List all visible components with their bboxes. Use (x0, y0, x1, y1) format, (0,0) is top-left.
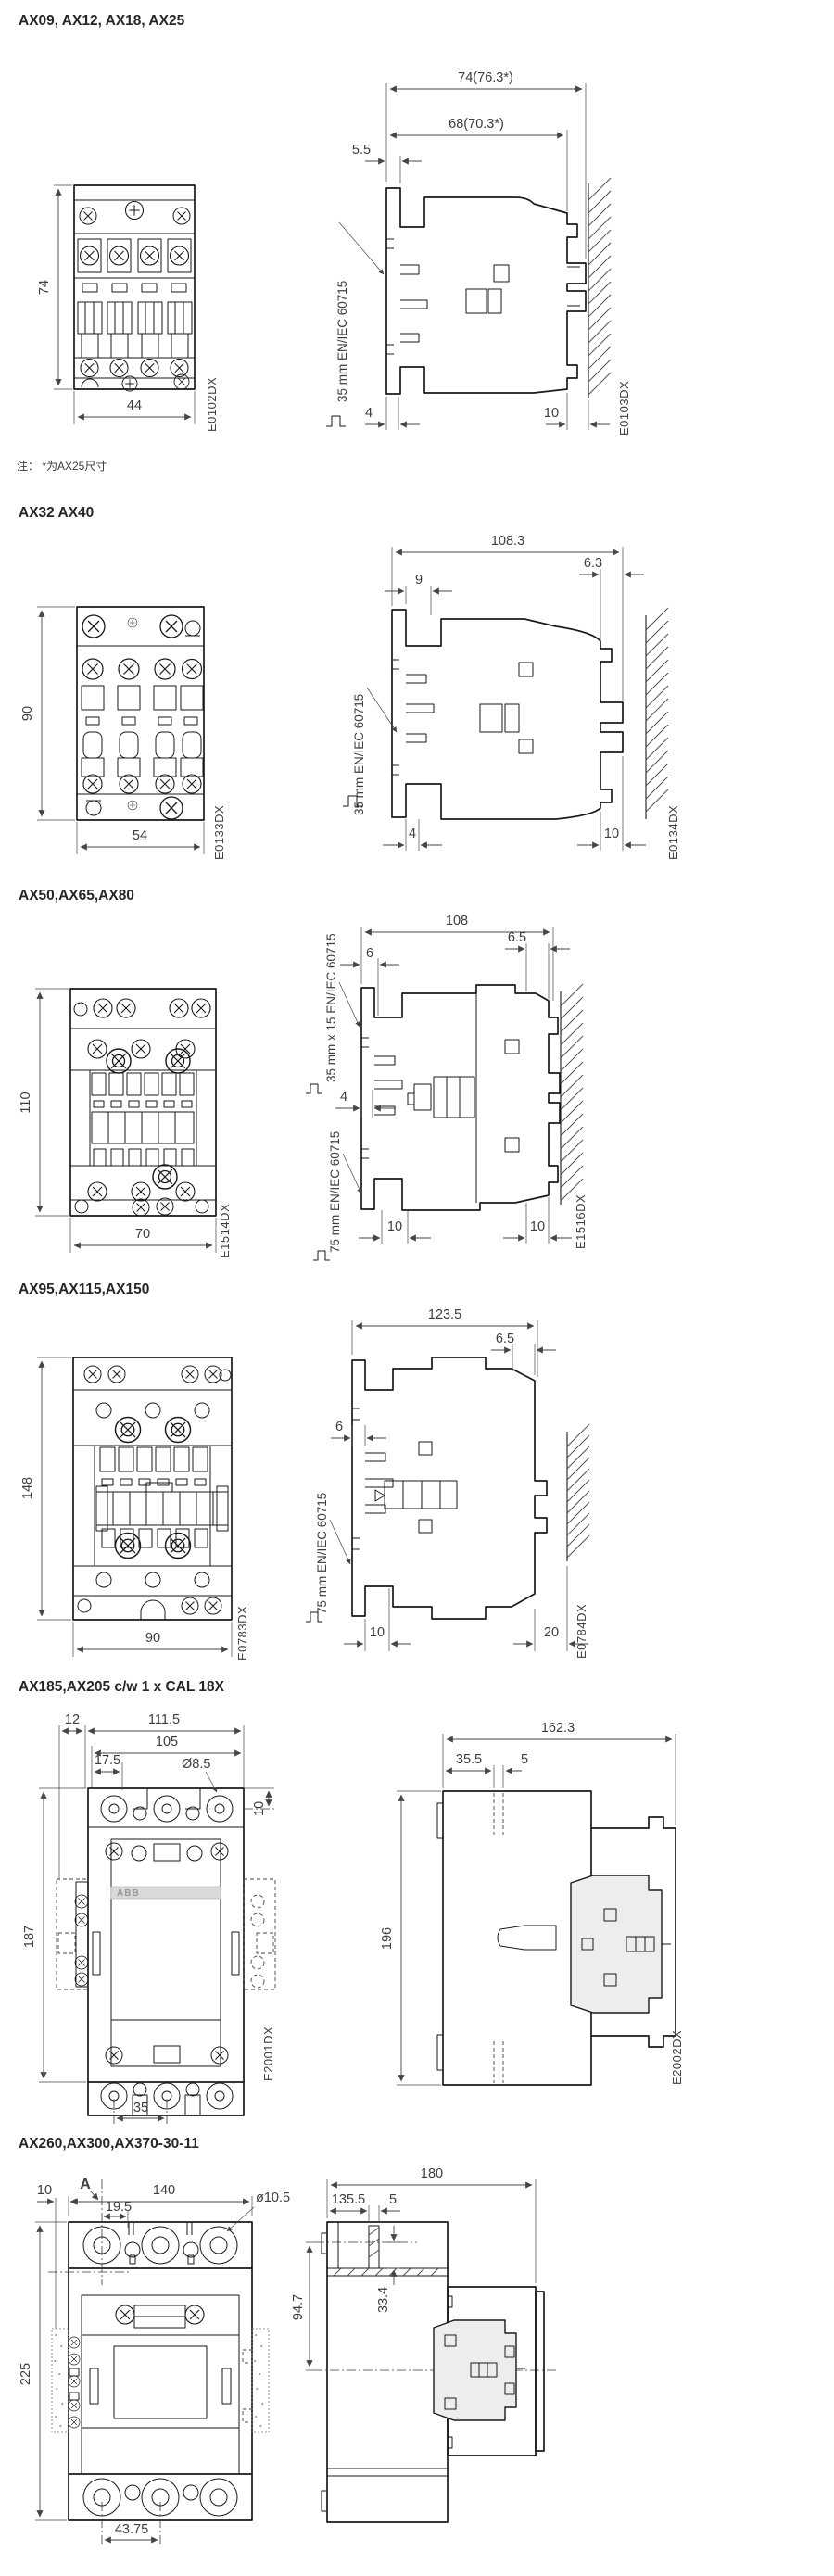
dim-front-height: 148 (20, 1477, 35, 1499)
panel-cutout-hatch-right (252, 2329, 269, 2432)
dim-side-5-5: 5.5 (352, 143, 371, 158)
ax95-front-view (73, 1357, 232, 1620)
drawing-code: E0102DX (205, 377, 219, 432)
dim-side-20: 20 (544, 1625, 559, 1640)
ax185-side-view (437, 1791, 676, 2085)
din-rail-label: 35 mm EN/IEC 60715 (335, 281, 349, 402)
dim-side-overall: 180 (421, 2166, 443, 2181)
dim-side-4: 4 (409, 827, 416, 841)
datasheet-page: AX09, AX12, AX18, AX25 注： *为AX25尺寸 AX32 … (0, 0, 834, 2576)
dim-side-10: 10 (604, 827, 619, 841)
dim-17-5: 17.5 (95, 1753, 120, 1768)
drawings-ax95: 148 90 E0783DX 123.5 6.5 6 10 (0, 1283, 834, 1677)
dim-111-5: 111.5 (148, 1712, 180, 1727)
dim-front-height: 187 (22, 1926, 37, 1948)
din-rail-icon (326, 416, 346, 426)
ax50-front-view (70, 989, 216, 1216)
drawings-ax185: ABB 12 111.5 105 17.5 Ø8.5 (0, 1677, 834, 2131)
ax185-front-dimensions: 12 111.5 105 17.5 Ø8.5 10 187 35 E2001DX (22, 1712, 275, 2124)
drawing-code: E2002DX (670, 2030, 684, 2085)
dim-35-5: 35.5 (456, 1752, 482, 1767)
dim-35: 35 (133, 2101, 148, 2115)
drawing-code: E2001DX (261, 2027, 275, 2081)
din-rail-icon (306, 1084, 322, 1093)
dim-side-6: 6 (366, 946, 373, 961)
ax32-front-view (77, 607, 204, 820)
drawing-code: E0103DX (617, 381, 631, 436)
dim-side-4: 4 (365, 406, 373, 421)
ax32-front-dimensions: 90 54 E0133DX (20, 607, 226, 860)
dim-side-6-3: 6.3 (584, 556, 602, 571)
dim-side-overall: 162.3 (541, 1721, 575, 1736)
drawing-code: E1516DX (574, 1194, 588, 1249)
drawings-ax50: 110 70 E1514DX 108 6 6.5 4 (0, 894, 834, 1283)
dim-12: 12 (65, 1712, 80, 1727)
dim-side-overall: 108.3 (491, 534, 524, 549)
dim-10: 10 (37, 2183, 52, 2198)
dim-5: 5 (521, 1752, 528, 1767)
drawing-code: E0133DX (212, 805, 226, 860)
abb-logo: ABB (117, 1888, 140, 1899)
dim-front-height: 225 (19, 2363, 33, 2385)
ax185-front-view: ABB (57, 1788, 275, 2115)
dim-94-7: 94.7 (291, 2294, 306, 2320)
dim-5: 5 (389, 2192, 397, 2207)
ax09-front-view (74, 185, 195, 391)
ax32-side-dimensions: 108.3 9 6.3 4 10 35 mm EN/IEC 60715 E013… (343, 534, 680, 860)
dim-19-5: 19.5 (106, 2200, 132, 2215)
drawing-code: E0134DX (666, 805, 680, 860)
dim-front-width: 54 (133, 828, 147, 843)
dim-front-width: 70 (135, 1227, 150, 1242)
dim-side-height: 196 (380, 1927, 395, 1950)
dim-side-overall: 74(76.3*) (458, 70, 513, 85)
drawings-ax260: A 10 140 19.5 ø10.5 225 43.75 (0, 2131, 834, 2576)
ax32-side-view (392, 608, 668, 819)
dim-front-width: 44 (127, 398, 142, 413)
drawing-code: E0784DX (575, 1604, 588, 1659)
section-marker-a: A (80, 2177, 91, 2192)
dim-front-height: 90 (20, 706, 35, 721)
dim-front-height: 74 (37, 280, 52, 295)
dim-10-vert: 10 (252, 1801, 267, 1816)
drawings-ax09: 74 44 E0102DX 74(76.3*) 68(70.3*) 5.5 4 (0, 0, 834, 500)
din-rail-label-75: 75 mm EN/IEC 60715 (328, 1131, 342, 1253)
din-rail-label: 35 mm EN/IEC 60715 (352, 694, 366, 815)
dim-side-10: 10 (544, 406, 559, 421)
drawing-code: E1514DX (218, 1204, 232, 1258)
dim-side-overall: 123.5 (428, 1307, 461, 1322)
dim-140: 140 (153, 2183, 175, 2198)
ax50-side-view (361, 984, 583, 1210)
din-rail-label: 75 mm EN/IEC 60715 (315, 1493, 329, 1614)
ax260-side-view (313, 2222, 556, 2522)
dim-side-overall: 108 (446, 914, 468, 928)
dim-side-9: 9 (415, 573, 423, 587)
dim-side-6-5: 6.5 (508, 930, 526, 945)
dim-front-width: 90 (145, 1631, 160, 1646)
din-rail-label-35: 35 mm x 15 EN/IEC 60715 (324, 933, 338, 1082)
dim-side-10: 10 (370, 1625, 385, 1640)
dim-side-10-right: 10 (530, 1219, 545, 1234)
dim-43-75: 43.75 (115, 2522, 148, 2537)
dim-33-4: 33.4 (376, 2287, 391, 2313)
dim-hole-dia: ø10.5 (256, 2191, 290, 2205)
dim-105: 105 (156, 1735, 178, 1749)
ax95-front-dimensions: 148 90 E0783DX (20, 1357, 249, 1661)
ax260-front-view (48, 2179, 269, 2520)
dim-hole-dia: Ø8.5 (182, 1757, 210, 1772)
dim-side-6-5: 6.5 (496, 1332, 514, 1346)
dim-side-10-left: 10 (387, 1219, 402, 1234)
dim-side-inner: 68(70.3*) (449, 117, 504, 132)
panel-cutout-hatch-left (52, 2329, 69, 2432)
ax09-side-view (386, 178, 611, 398)
dim-135-5: 135.5 (332, 2192, 365, 2207)
ax95-side-view (352, 1357, 589, 1619)
dim-side-4: 4 (340, 1090, 347, 1105)
drawing-code: E0783DX (235, 1606, 249, 1661)
ax09-side-dimensions: 74(76.3*) 68(70.3*) 5.5 4 10 35 mm EN/IE… (326, 70, 631, 436)
drawings-ax32: 90 54 E0133DX 108.3 9 6.3 4 10 35 (0, 500, 834, 894)
dim-front-height: 110 (19, 1092, 33, 1113)
dim-side-6: 6 (335, 1420, 343, 1434)
